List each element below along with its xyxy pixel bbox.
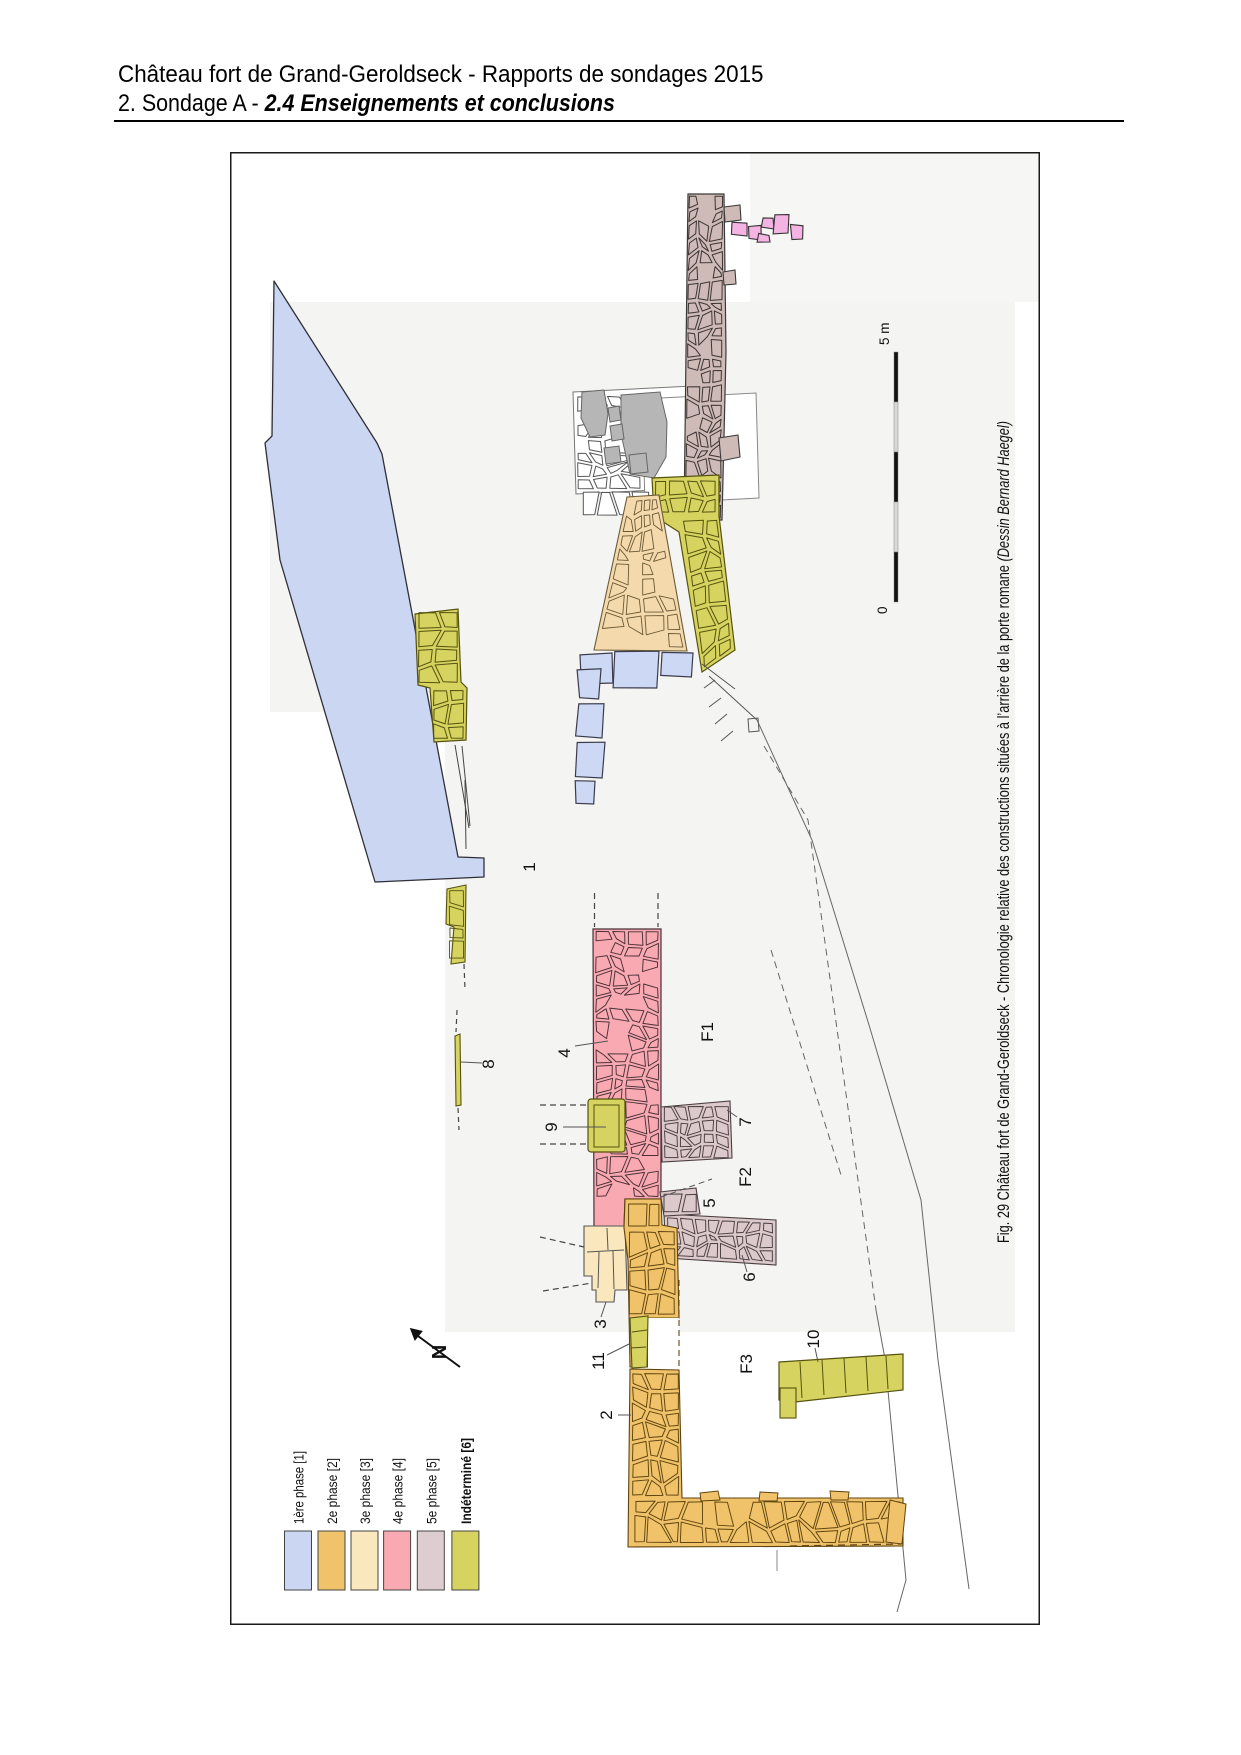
svg-text:5e phase [5]: 5e phase [5] [423,1458,439,1524]
svg-text:6: 6 [740,1272,759,1281]
svg-text:8: 8 [479,1059,498,1068]
svg-text:Indéterminé [6]: Indéterminé [6] [458,1438,474,1524]
svg-text:2: 2 [597,1410,616,1419]
svg-text:1ère phase [1]: 1ère phase [1] [291,1451,307,1524]
svg-text:5: 5 [700,1198,719,1207]
svg-text:Fig. 29 Château fort de Grand-: Fig. 29 Château fort de Grand-Geroldseck… [995,421,1013,1243]
svg-text:10: 10 [804,1330,823,1349]
svg-text:4: 4 [555,1048,574,1057]
svg-text:9: 9 [542,1122,561,1131]
svg-text:5 m: 5 m [877,322,892,345]
svg-text:7: 7 [736,1117,755,1126]
svg-text:11: 11 [589,1352,608,1370]
svg-text:3: 3 [591,1319,610,1328]
svg-text:3e phase [3]: 3e phase [3] [357,1458,373,1524]
svg-text:F3: F3 [737,1354,756,1374]
svg-text:2e phase [2]: 2e phase [2] [324,1458,340,1524]
svg-text:F1: F1 [698,1022,717,1042]
svg-text:4e phase [4]: 4e phase [4] [390,1458,406,1524]
svg-text:1: 1 [520,862,539,871]
svg-text:0: 0 [875,606,890,614]
svg-text:N: N [429,1345,451,1359]
svg-text:F2: F2 [736,1167,755,1187]
